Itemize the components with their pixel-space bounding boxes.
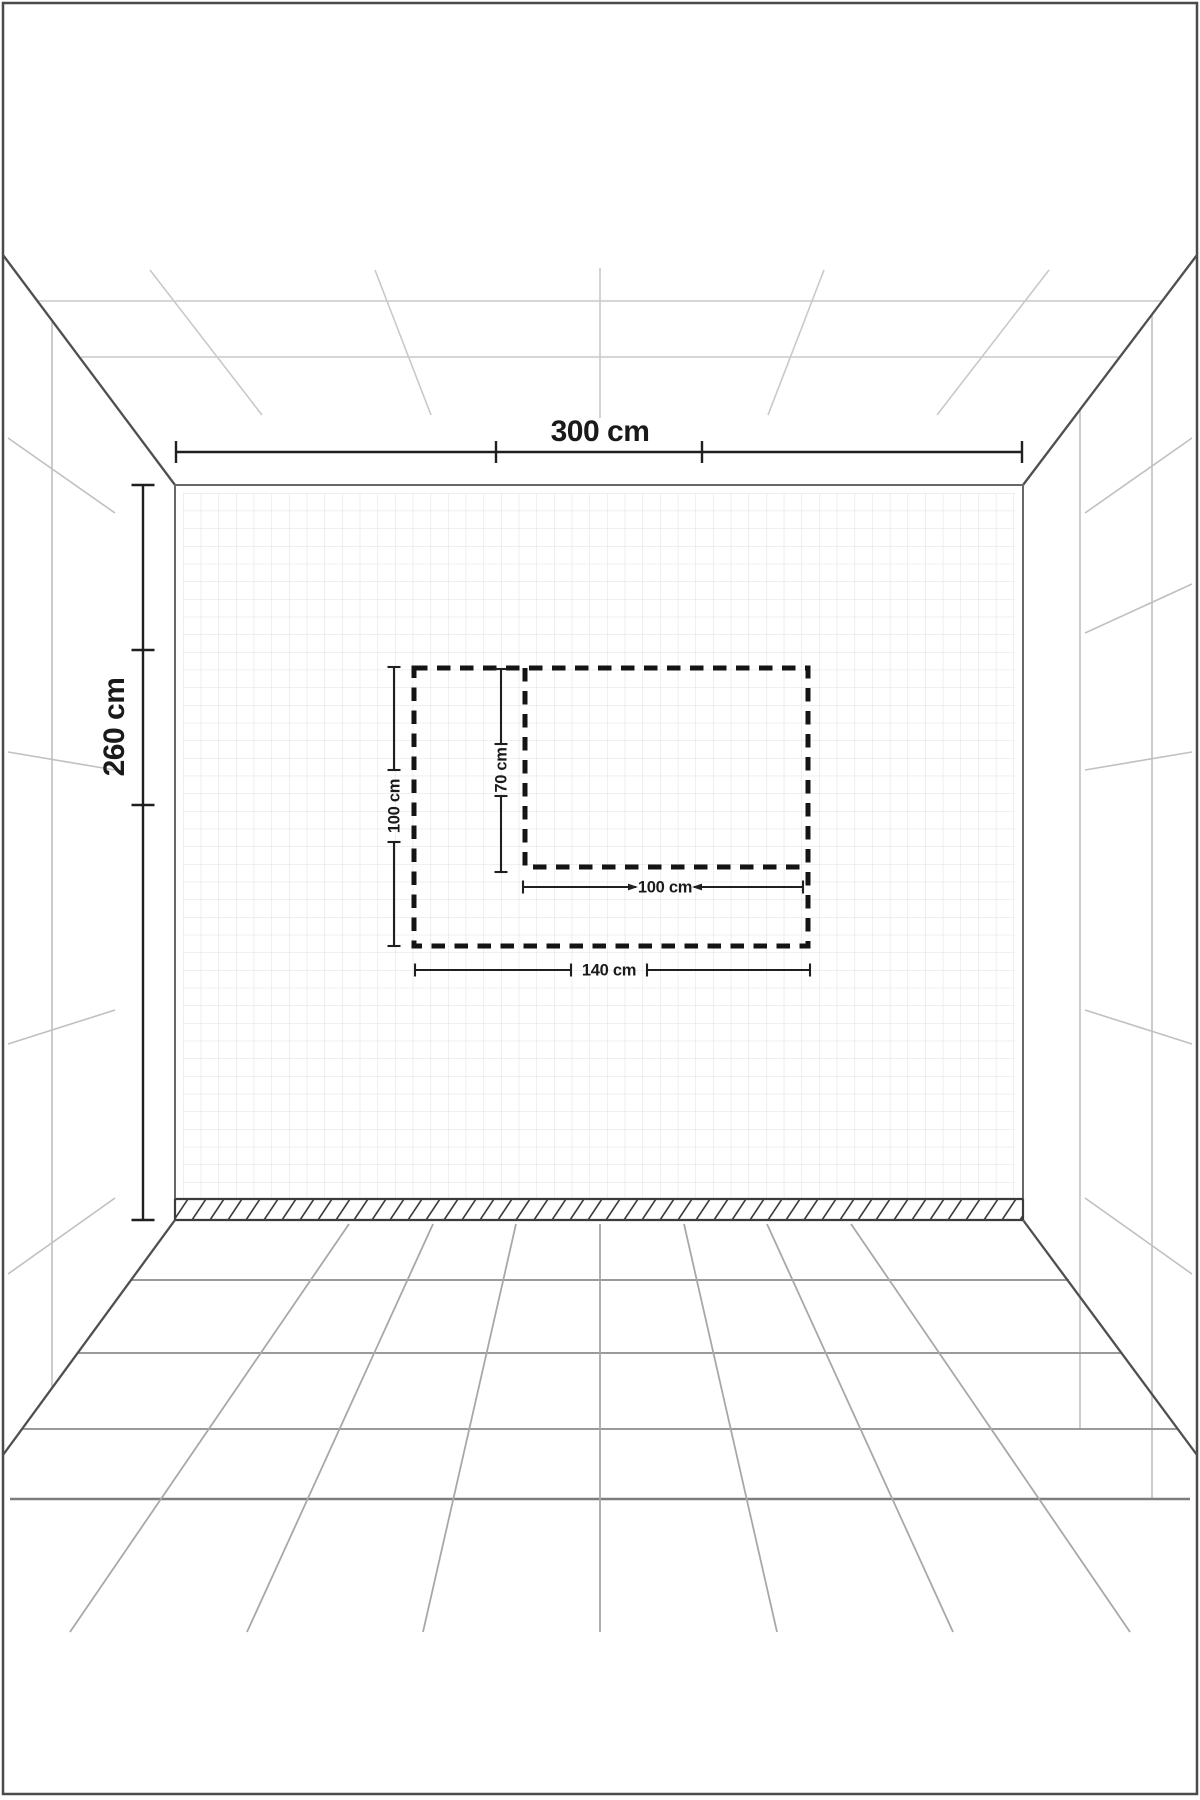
skirting-strip [175,1199,1023,1220]
dimension-wall-height: 260 cm [98,485,155,1220]
room-dimension-diagram: 300 cm 260 cm 100 cm 70 cm 10 [0,0,1200,1800]
inner-panel-height-label: 70 cm [493,747,511,792]
wall-width-label: 300 cm [551,415,650,448]
wall-height-label: 260 cm [98,678,131,777]
dimension-wall-width: 300 cm [176,415,1022,463]
floor-grid [10,1224,1190,1632]
back-wall [175,485,1023,1220]
outer-panel-height-label: 100 cm [386,779,404,833]
diagram-canvas: 300 cm 260 cm 100 cm 70 cm 10 [0,0,1200,1800]
inner-panel-width-label: 100 cm [638,879,692,897]
right-wall-grid [1080,314,1192,1500]
back-wall-mesh-grid [183,493,1015,1199]
ceiling-grid [38,268,1162,418]
left-wall-grid [8,320,115,1388]
outer-panel-width-label: 140 cm [582,962,636,980]
